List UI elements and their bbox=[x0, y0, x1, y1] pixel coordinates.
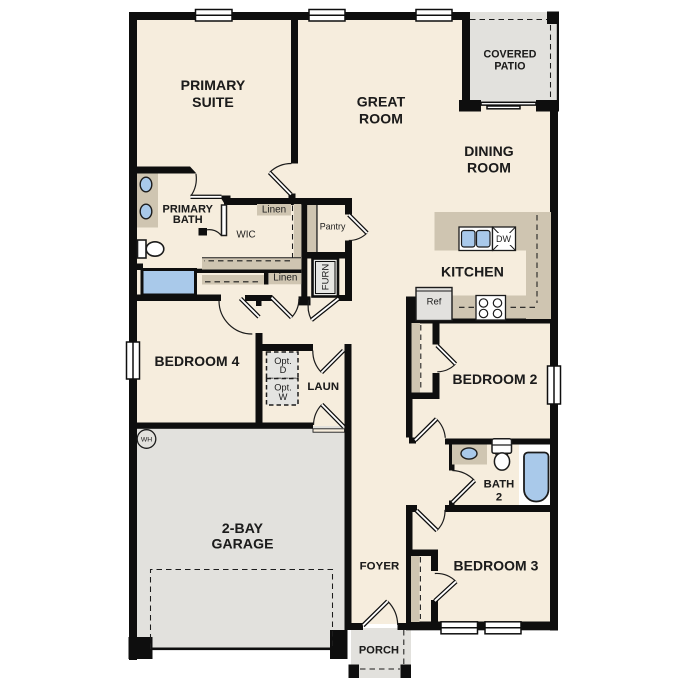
svg-text:WIC: WIC bbox=[236, 229, 255, 240]
svg-text:BATH: BATH bbox=[173, 214, 203, 226]
svg-text:BATH: BATH bbox=[484, 478, 515, 490]
svg-text:PATIO: PATIO bbox=[494, 61, 525, 73]
svg-text:COVERED: COVERED bbox=[483, 49, 536, 61]
svg-text:KITCHEN: KITCHEN bbox=[441, 264, 504, 280]
svg-text:Ref: Ref bbox=[427, 297, 442, 308]
svg-text:Linen: Linen bbox=[262, 204, 286, 215]
svg-text:PRIMARY: PRIMARY bbox=[181, 77, 246, 93]
svg-text:GARAGE: GARAGE bbox=[211, 536, 273, 552]
svg-text:PORCH: PORCH bbox=[359, 645, 399, 657]
svg-text:GREAT: GREAT bbox=[357, 93, 406, 109]
svg-text:Linen: Linen bbox=[273, 273, 297, 284]
svg-text:FURN: FURN bbox=[321, 264, 332, 291]
svg-text:ROOM: ROOM bbox=[359, 111, 403, 127]
svg-text:2: 2 bbox=[496, 492, 502, 504]
svg-text:BEDROOM 2: BEDROOM 2 bbox=[452, 371, 537, 387]
svg-text:DW: DW bbox=[496, 234, 511, 244]
svg-text:DINING: DINING bbox=[464, 143, 514, 159]
svg-text:D: D bbox=[280, 365, 287, 375]
svg-text:BEDROOM 4: BEDROOM 4 bbox=[154, 353, 239, 369]
svg-text:W: W bbox=[279, 392, 288, 402]
svg-text:WH: WH bbox=[141, 437, 152, 444]
svg-text:SUITE: SUITE bbox=[192, 94, 234, 110]
svg-text:2-BAY: 2-BAY bbox=[222, 520, 264, 536]
svg-text:FOYER: FOYER bbox=[360, 561, 400, 573]
svg-text:Pantry: Pantry bbox=[320, 222, 346, 232]
svg-text:ROOM: ROOM bbox=[467, 160, 511, 176]
svg-text:BEDROOM 3: BEDROOM 3 bbox=[453, 557, 538, 573]
svg-text:LAUN: LAUN bbox=[307, 381, 339, 393]
